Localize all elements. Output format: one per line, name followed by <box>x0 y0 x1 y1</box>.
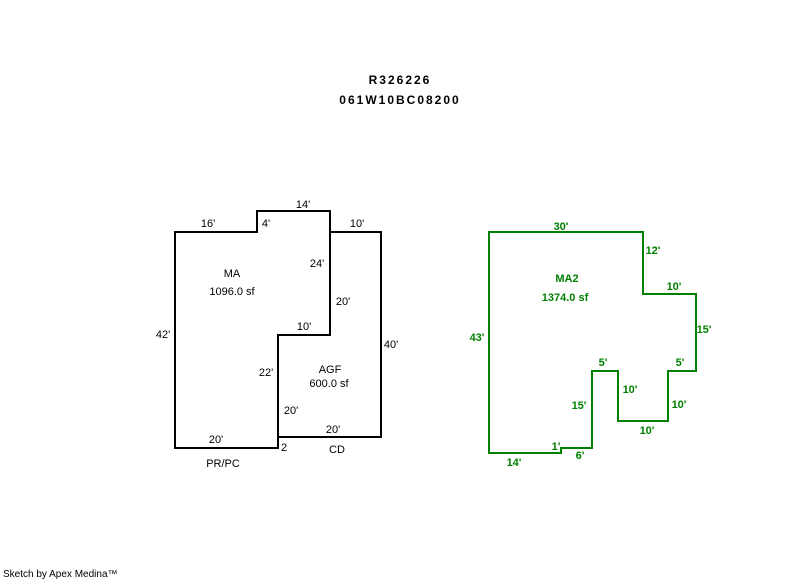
ma2-dim-5-right: 5' <box>676 357 685 369</box>
ma2-dim-5-left: 5' <box>599 357 608 369</box>
ma-dim-22: 22' <box>259 367 273 379</box>
ma2-dim-6: 6' <box>576 450 585 462</box>
ma2-dim-10-left-inner: 10' <box>623 384 638 396</box>
ma2-shape-label: MA2 <box>555 273 578 285</box>
agf-dim-20-upper-left: 20' <box>336 296 350 308</box>
ma2-dim-43: 43' <box>470 332 485 344</box>
ma2-dim-12: 12' <box>646 245 661 257</box>
agf-dim-10-top: 10' <box>350 218 364 230</box>
ma2-dim-10-right-inner: 10' <box>672 399 687 411</box>
ma-dim-20-bottom: 20' <box>209 434 223 446</box>
ma-dim-24: 24' <box>310 258 324 270</box>
ma2-dim-10-upper: 10' <box>667 281 682 293</box>
cd-code-label: CD <box>329 444 345 456</box>
ma2-dim-30: 30' <box>554 221 569 233</box>
ma-area-label: 1096.0 sf <box>209 286 255 298</box>
ma-dim-4: 4' <box>262 218 270 230</box>
ma2-dim-10-bottom-inner: 10' <box>640 425 655 437</box>
ma2-dim-14: 14' <box>507 457 522 469</box>
ma-shape-label: MA <box>224 268 241 280</box>
ma-dim-14: 14' <box>296 199 310 211</box>
ma2-dim-15-right: 15' <box>697 324 712 336</box>
ma2-outline <box>489 232 696 453</box>
agf-dim-40: 40' <box>384 339 398 351</box>
ma2-area-label: 1374.0 sf <box>542 292 589 304</box>
agf-dim-20-bottom: 20' <box>326 424 340 436</box>
prpc-code-label: PR/PC <box>206 458 240 470</box>
agf-dim-10-inner: 10' <box>297 321 311 333</box>
agf-dim-20-lower-left: 20' <box>284 405 298 417</box>
agf-area-label: 600.0 sf <box>309 378 349 390</box>
agf-shape-label: AGF <box>319 364 342 376</box>
ma-dim-42: 42' <box>156 329 170 341</box>
sketch-page: R326226 061W10BC08200 16'4'14'10'24'20'1… <box>0 0 800 587</box>
footer-branding: Sketch by Apex Medina™ <box>3 569 118 580</box>
sketch-canvas: 16'4'14'10'24'20'10'42'40'22'20'20'20'2M… <box>0 0 800 587</box>
ma-dim-16: 16' <box>201 218 215 230</box>
ma-dim-2: 2 <box>281 442 287 454</box>
ma2-dim-15-left: 15' <box>572 400 587 412</box>
ma2-dim-1: 1' <box>552 441 561 453</box>
